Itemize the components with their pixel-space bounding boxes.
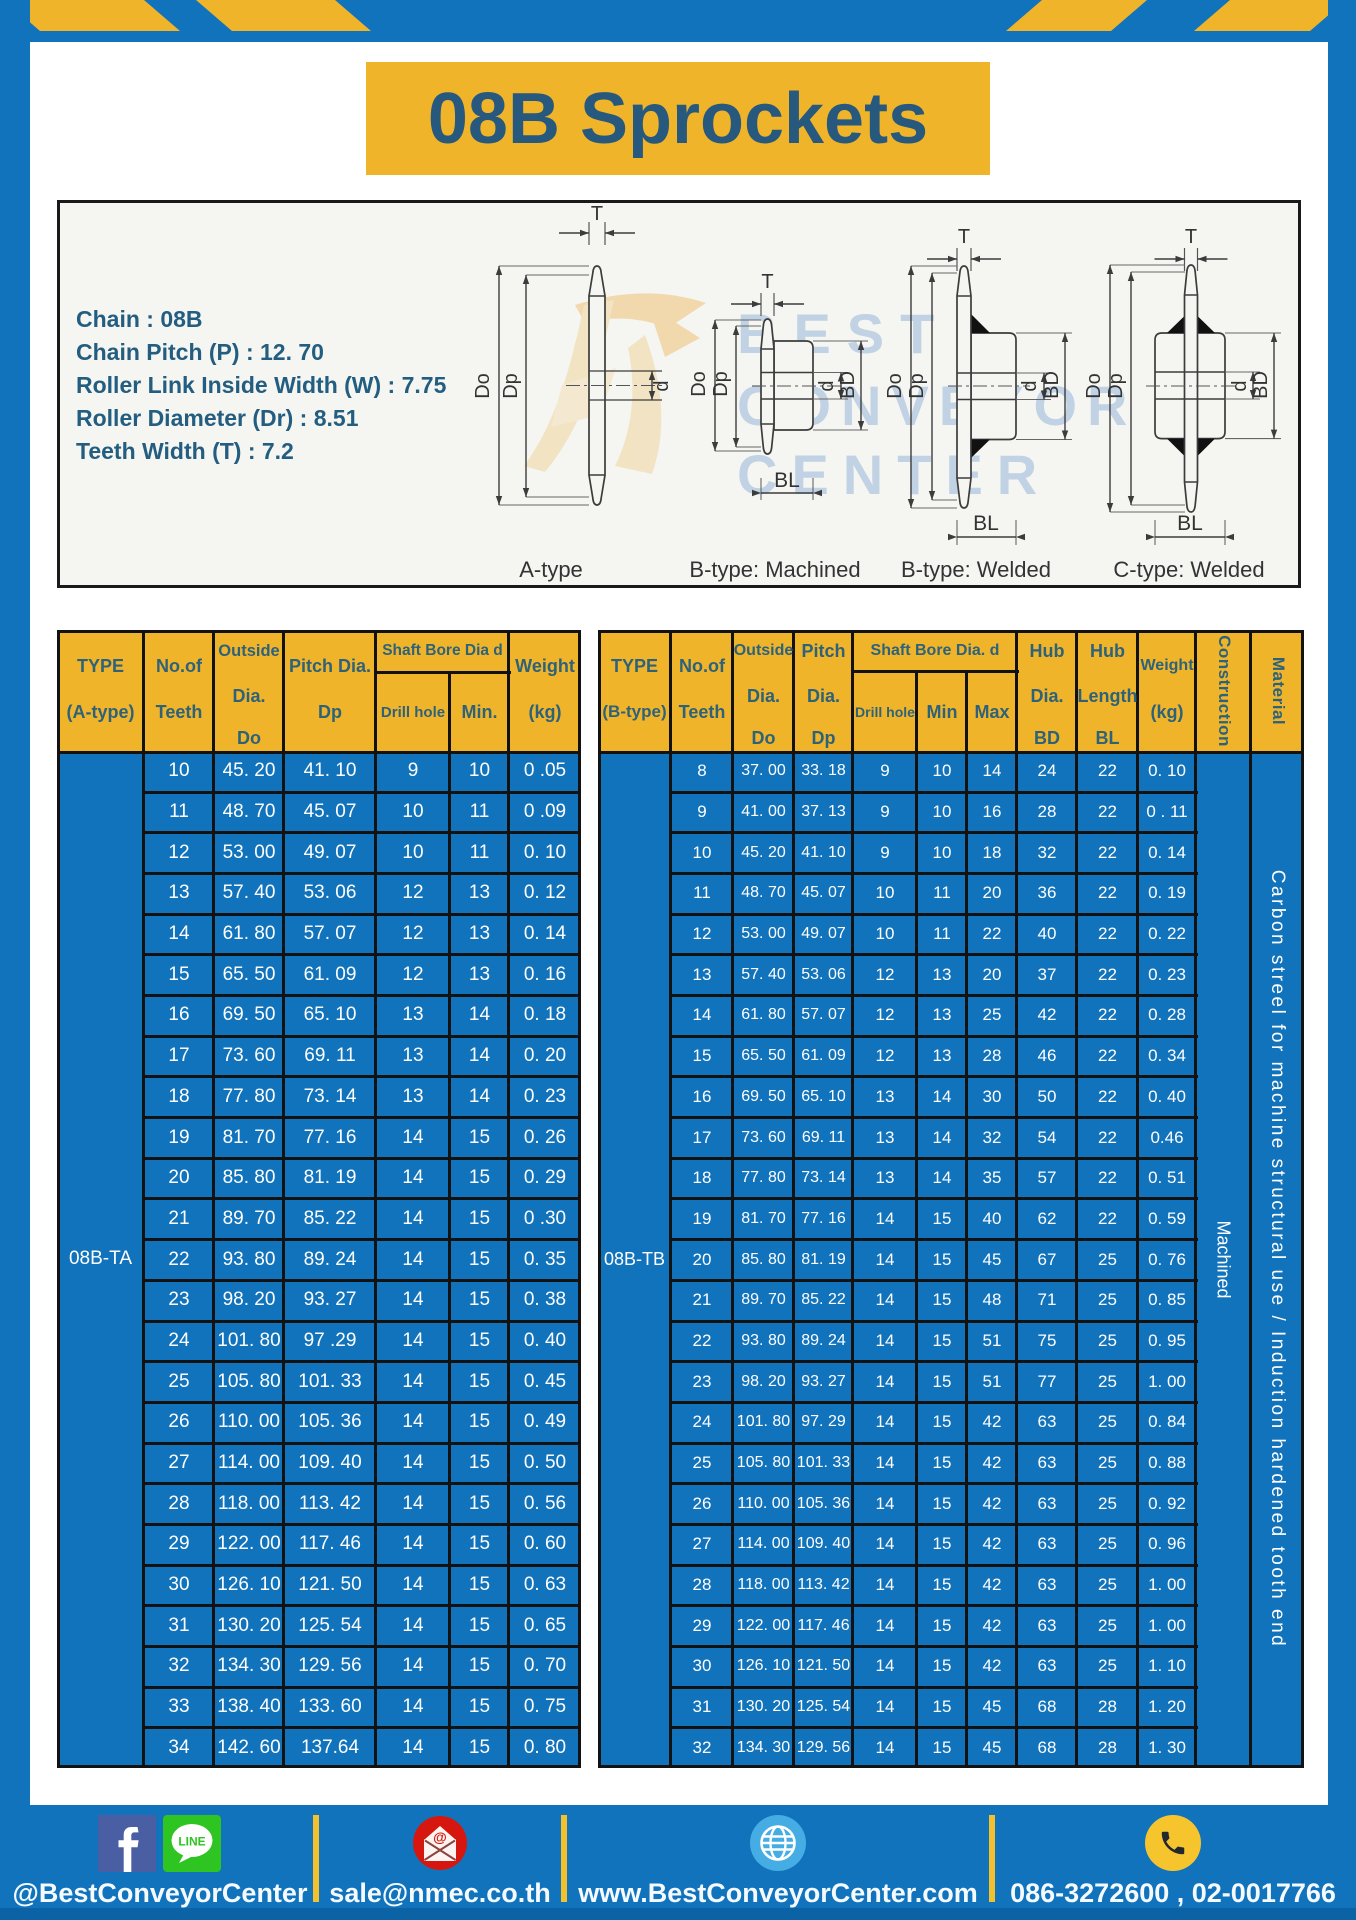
svg-text:LINE: LINE (178, 1835, 205, 1849)
svg-text:T: T (591, 203, 603, 225)
svg-text:B-type: Machined: B-type: Machined (689, 557, 860, 582)
svg-text:Do: Do (884, 373, 906, 399)
svg-text:BD: BD (837, 371, 859, 399)
svg-text:Do: Do (1083, 373, 1105, 399)
svg-text:Dp: Dp (906, 373, 928, 399)
svg-text:T: T (761, 271, 773, 293)
svg-text:T: T (958, 226, 970, 248)
svg-text:d: d (1019, 380, 1041, 391)
svg-text:B-type: Welded: B-type: Welded (901, 557, 1051, 582)
svg-text:BL: BL (774, 469, 800, 492)
svg-text:C-type: Welded: C-type: Welded (1113, 557, 1264, 582)
svg-text:BL: BL (1177, 512, 1203, 535)
svg-text:Do: Do (688, 371, 710, 397)
svg-text:Do: Do (472, 373, 494, 399)
svg-text:d: d (816, 380, 838, 391)
svg-text:A-type: A-type (519, 557, 583, 582)
svg-text:Dp: Dp (1105, 373, 1127, 399)
svg-text:BD: BD (1250, 371, 1272, 399)
svg-text:BD: BD (1041, 371, 1063, 399)
svg-text:BL: BL (973, 512, 999, 535)
svg-text:d: d (651, 380, 673, 391)
svg-text:d: d (1229, 380, 1251, 391)
svg-text:T: T (1185, 226, 1197, 248)
svg-text:Dp: Dp (500, 373, 522, 399)
svg-text:Dp: Dp (710, 371, 732, 397)
svg-text:@: @ (433, 1829, 447, 1845)
